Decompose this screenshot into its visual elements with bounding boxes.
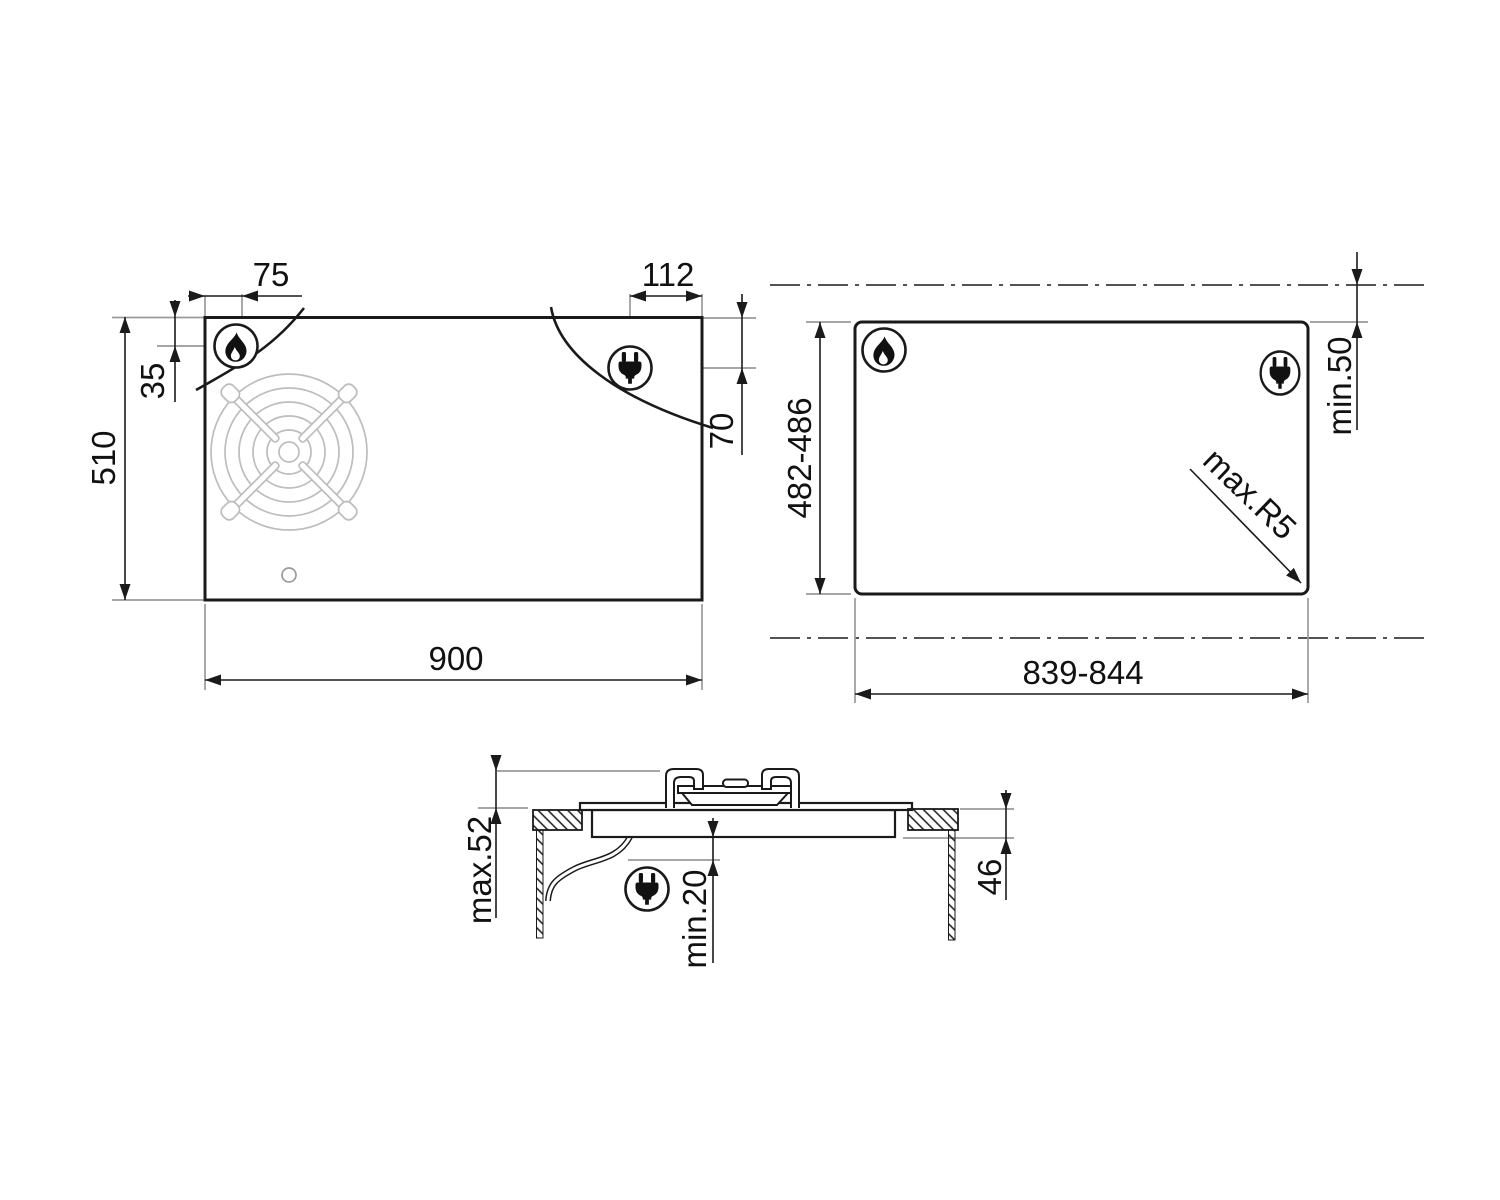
plug-icon	[1261, 352, 1300, 395]
dim-label: 482-486	[781, 397, 818, 518]
dimension-plan-width: 900	[205, 640, 702, 686]
hob-body-section	[592, 810, 895, 837]
dimension-plan-height: 510	[85, 317, 131, 600]
installation-drawing: 75 112 35 510 70	[0, 0, 1500, 1200]
dimension-section-height-above: max.52	[461, 755, 502, 924]
dim-label: min.50	[1321, 336, 1358, 435]
cutout-view: 482-486 839-844 min.50 max.R5	[770, 252, 1428, 703]
worktop-section-right	[908, 809, 958, 940]
dimension-plan-socket-offset-x: 112	[630, 256, 702, 302]
dim-label: 35	[134, 363, 171, 400]
plan-view: 75 112 35 510 70	[85, 256, 756, 690]
worktop-section-left	[533, 810, 582, 938]
dimension-section-depth-below: 46	[971, 790, 1012, 900]
dim-label: 70	[703, 413, 740, 450]
plug-icon	[626, 868, 669, 911]
dim-label: 510	[85, 430, 122, 485]
section-view: max.52 min.20 46	[461, 755, 1014, 969]
dimension-plan-burner-offset-x: 75	[188, 256, 302, 302]
dimension-cutout-rear-clearance: min.50	[1321, 252, 1363, 436]
dim-label: 46	[971, 859, 1008, 896]
dim-label: min.20	[676, 869, 713, 968]
flame-icon	[863, 329, 906, 372]
dimension-plan-burner-offset-y: 35	[134, 300, 181, 402]
dimension-section-clearance-below: min.20	[676, 818, 719, 969]
flame-icon	[215, 325, 258, 368]
dim-label: 900	[428, 640, 483, 677]
dimension-cutout-width: 839-844	[855, 654, 1308, 700]
power-cable	[548, 837, 630, 901]
technical-drawing-page: 75 112 35 510 70	[0, 0, 1500, 1200]
dim-label: max.52	[461, 816, 498, 924]
dimension-cutout-height: 482-486	[781, 322, 826, 594]
plug-icon	[609, 347, 652, 390]
dim-label: 112	[642, 256, 695, 293]
dim-label: 75	[253, 256, 290, 293]
dim-label: 839-844	[1022, 654, 1143, 691]
